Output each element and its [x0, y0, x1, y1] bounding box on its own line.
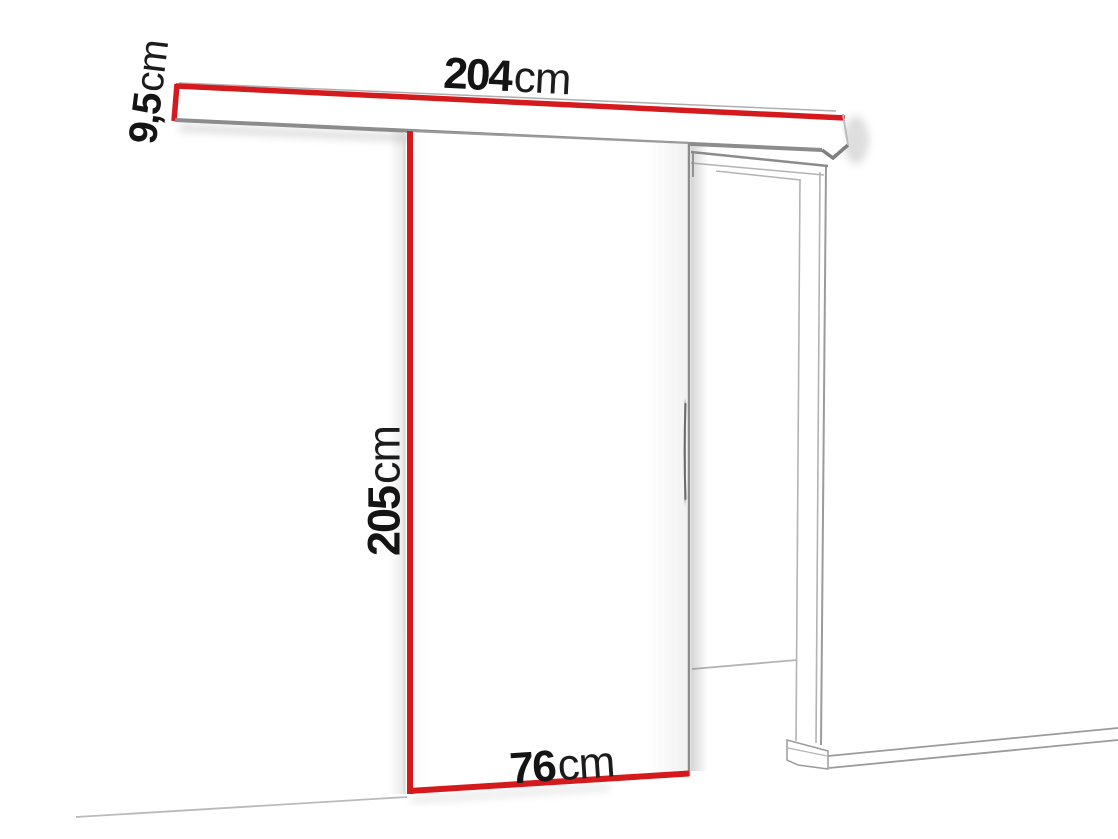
frame-lintel-outer-line [691, 152, 828, 166]
floor-line-right-upper [828, 728, 1118, 756]
rail-width-unit: cm [513, 55, 572, 102]
door-handle-line [685, 404, 686, 499]
dimension-label-rail-width: 204 cm [442, 52, 571, 103]
floor-line-left [76, 797, 407, 817]
rail-height-value: 9,5 [123, 92, 169, 146]
door-height-value: 205 [362, 487, 407, 556]
dimension-label-door-height: 205 cm [362, 426, 407, 556]
sliding-door [388, 131, 708, 800]
door-right-shadow-band [691, 145, 708, 771]
door-width-unit: cm [556, 740, 616, 788]
frame-casing-outer-line [821, 167, 826, 745]
door-width-value: 76 [508, 745, 556, 792]
floor-line-right-lower [829, 740, 1118, 768]
door-frame [691, 152, 828, 769]
door-height-unit: cm [362, 426, 407, 484]
rail-left-red-edge [174, 84, 177, 121]
rail-height-unit: cm [129, 38, 175, 94]
rail-width-value: 204 [442, 52, 512, 99]
frame-jamb-inner-line [796, 180, 800, 741]
diagram-svg [0, 0, 1118, 839]
sliding-door-dimension-diagram: 204 cm 9,5 cm 205 cm 76 cm [0, 0, 1118, 839]
dimension-label-door-width: 76 cm [508, 740, 615, 791]
frame-casing-inner-line [816, 172, 820, 743]
door-panel-face [408, 131, 689, 794]
